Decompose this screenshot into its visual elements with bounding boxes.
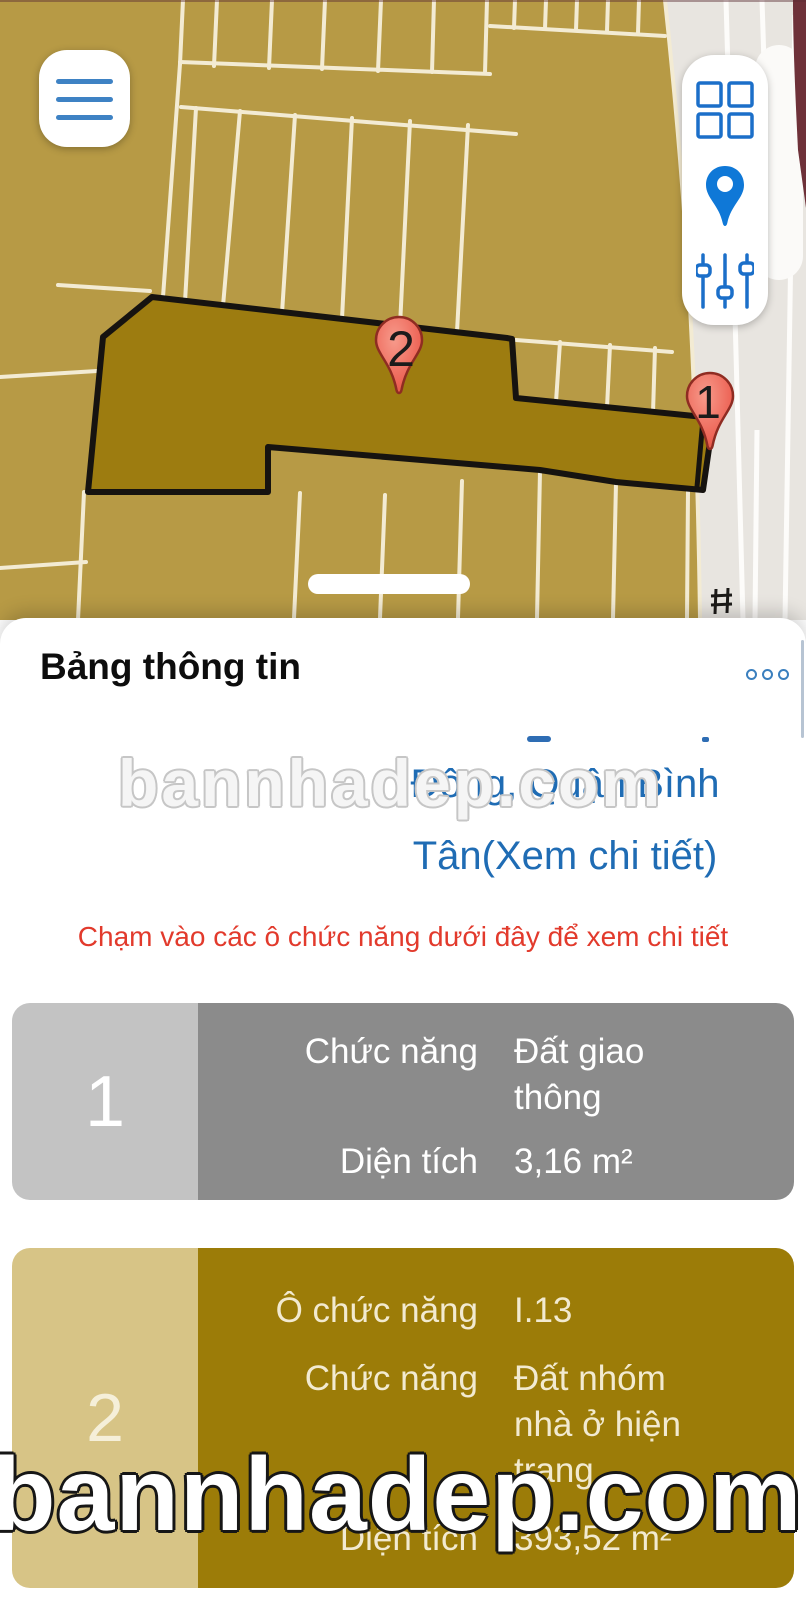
hamburger-icon: [56, 79, 113, 84]
info-card-1[interactable]: 1 Chức năng Đất giao thông Diện tích 3,1…: [12, 1003, 794, 1200]
top-edge-line: [0, 0, 806, 2]
card-row: Chức năng Đất giao thông: [198, 1029, 794, 1121]
tip-text: Chạm vào các ô chức năng dưới đây để xem…: [0, 921, 806, 953]
row-label: Chức năng: [198, 1029, 478, 1121]
card-row: Diện tích 3,16 m²: [198, 1139, 794, 1185]
row-value: Đất giao thông: [514, 1029, 714, 1121]
watermark-small: bannhadep.com: [118, 745, 663, 821]
row-label: Diện tích: [198, 1139, 478, 1185]
card-row: Ô chức năng I.13: [198, 1288, 794, 1334]
row-value: I.13: [514, 1288, 714, 1334]
watermark-large: bannhadep.com: [0, 1440, 802, 1550]
row-value: 3,16 m²: [514, 1139, 714, 1185]
pin-1-number: 1: [695, 376, 721, 428]
menu-button[interactable]: [39, 50, 130, 147]
map-controls-panel: [682, 55, 768, 325]
card-1-number: 1: [12, 1003, 198, 1200]
grid-squares-icon: [696, 81, 754, 139]
pin-2-number: 2: [387, 321, 415, 377]
location-pin-icon: [703, 164, 747, 232]
more-options-button[interactable]: [746, 669, 789, 680]
clipped-text-artifact: [702, 737, 709, 742]
panel-title: Bảng thông tin: [40, 646, 301, 688]
sliders-icon: [696, 253, 754, 311]
clipped-text-artifact: [527, 736, 551, 742]
street-label-pill: [308, 574, 470, 594]
address-line-2[interactable]: Tân(Xem chi tiết): [330, 820, 800, 892]
filters-button[interactable]: [682, 239, 768, 325]
locate-button[interactable]: [682, 155, 768, 241]
app-screen: 1 2: [0, 0, 806, 1599]
layers-button[interactable]: [682, 67, 768, 153]
card-1-body: Chức năng Đất giao thông Diện tích 3,16 …: [198, 1003, 794, 1200]
row-label: Ô chức năng: [198, 1288, 478, 1334]
dot-icon: [778, 669, 789, 680]
panel-scrollbar[interactable]: [801, 640, 804, 738]
dot-icon: [746, 669, 757, 680]
dot-icon: [762, 669, 773, 680]
